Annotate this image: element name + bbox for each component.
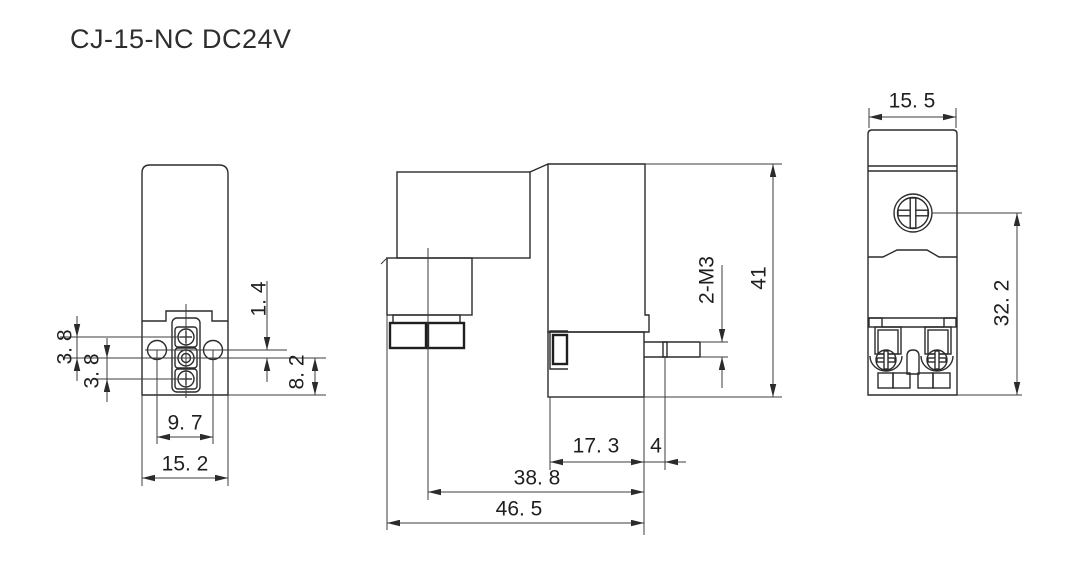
threaded-pin	[644, 342, 700, 357]
dim-hole-spacing: 9. 7	[157, 412, 213, 438]
dim-label-overall-length: 46. 5	[496, 498, 543, 521]
plug-cap	[397, 172, 530, 258]
dim-label-terminal-pitch-bottom: 3. 8	[81, 353, 104, 388]
dim-side-width: 15. 5	[869, 90, 956, 118]
dim-overall-length: 46. 5	[387, 498, 644, 524]
front-view: 17. 3 4 38. 8 46. 5 41 2-M3	[381, 164, 782, 535]
dim-label-thread-spec: 2-M3	[696, 256, 719, 304]
dim-body-length: 38. 8	[428, 467, 644, 493]
dim-label-terminal-to-base: 8. 2	[286, 354, 309, 389]
dim-thread-spec: 2-M3	[696, 256, 723, 388]
terminal-block-face	[870, 327, 953, 388]
screw-slot-vertical	[910, 198, 916, 228]
coil-block	[387, 258, 472, 315]
dim-label-port-stub: 4	[650, 435, 662, 458]
dim-screw-to-base: 32. 2	[991, 213, 1018, 395]
dim-overall-height: 41	[748, 164, 774, 397]
side-port	[553, 335, 567, 364]
dim-hole-to-terminal-offset: 1. 4	[248, 281, 271, 382]
terminal-screw-left	[876, 350, 896, 370]
port-flange	[393, 315, 460, 323]
dim-label-overall-height: 41	[748, 266, 771, 289]
dim-label-left-width: 15. 2	[162, 453, 209, 476]
solenoid-body	[548, 164, 649, 332]
left-view-connector	[172, 304, 200, 398]
port-block-right	[428, 323, 464, 348]
dim-label-body-length: 38. 8	[514, 467, 561, 490]
side-view: 15. 5 32. 2	[868, 90, 1022, 396]
dim-label-screw-to-base: 32. 2	[991, 280, 1014, 327]
dim-left-width: 15. 2	[142, 453, 228, 479]
technical-drawing: 3. 8 3. 8 1. 4 8. 2 9. 7	[0, 0, 1080, 565]
dim-label-hole-offset: 1. 4	[248, 281, 271, 316]
dim-label-hole-spacing: 9. 7	[167, 412, 202, 435]
port-block-left	[390, 323, 426, 348]
dim-terminal-to-base: 8. 2	[286, 354, 316, 395]
front-view-extension-lines	[387, 164, 782, 535]
center-divider	[907, 350, 919, 374]
dim-port-offset: 17. 3	[550, 435, 644, 463]
dim-label-port-offset: 17. 3	[573, 435, 620, 458]
dim-label-terminal-pitch-top: 3. 8	[54, 329, 77, 364]
drawing-page: CJ-15-NC DC24V	[0, 0, 1080, 565]
left-view-body-outline	[142, 165, 228, 395]
left-view: 3. 8 3. 8 1. 4 8. 2 9. 7	[54, 165, 327, 486]
terminal-screw-right	[927, 350, 947, 370]
dim-terminal-pitch-bottom: 3. 8	[81, 338, 108, 402]
dim-label-side-width: 15. 5	[889, 90, 936, 113]
cover-screw	[894, 194, 932, 232]
dim-terminal-pitch-top: 3. 8	[54, 316, 78, 381]
